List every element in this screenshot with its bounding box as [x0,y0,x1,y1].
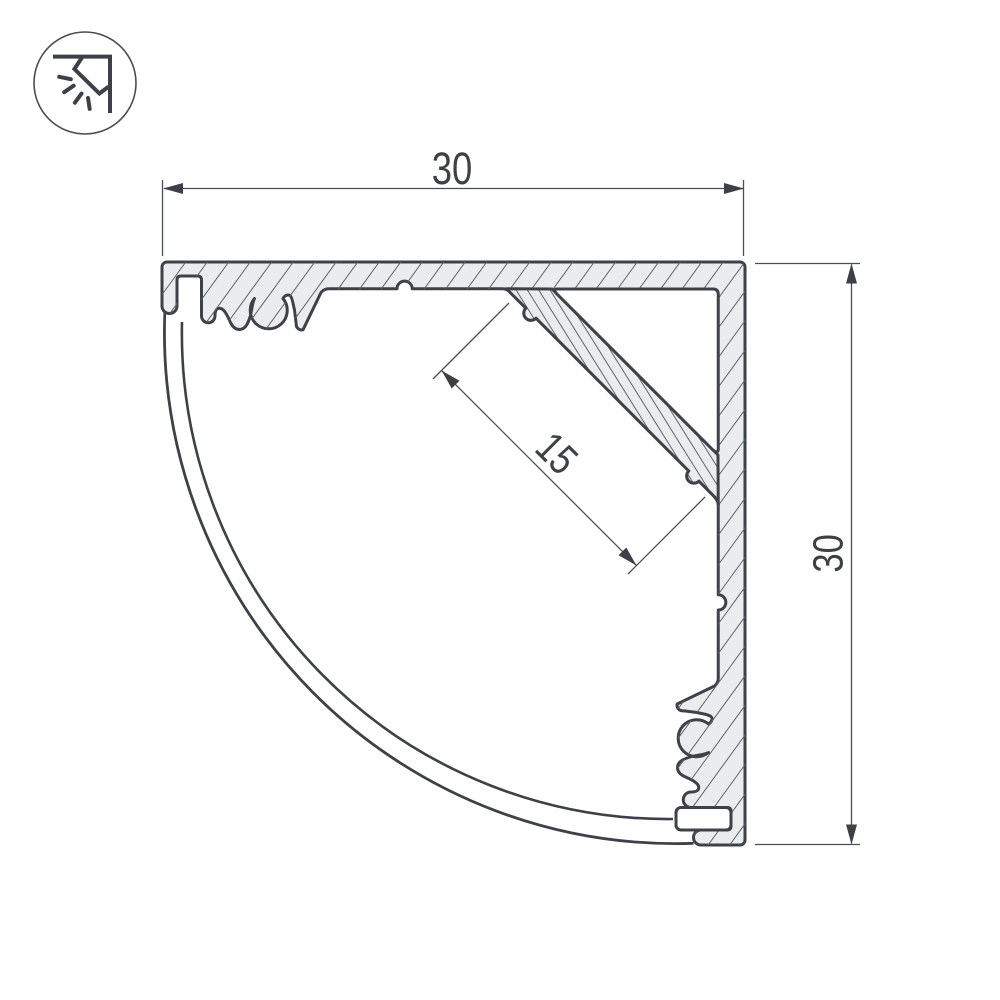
svg-text:30: 30 [806,534,853,573]
svg-text:30: 30 [432,143,473,194]
svg-text:15: 15 [526,424,586,484]
